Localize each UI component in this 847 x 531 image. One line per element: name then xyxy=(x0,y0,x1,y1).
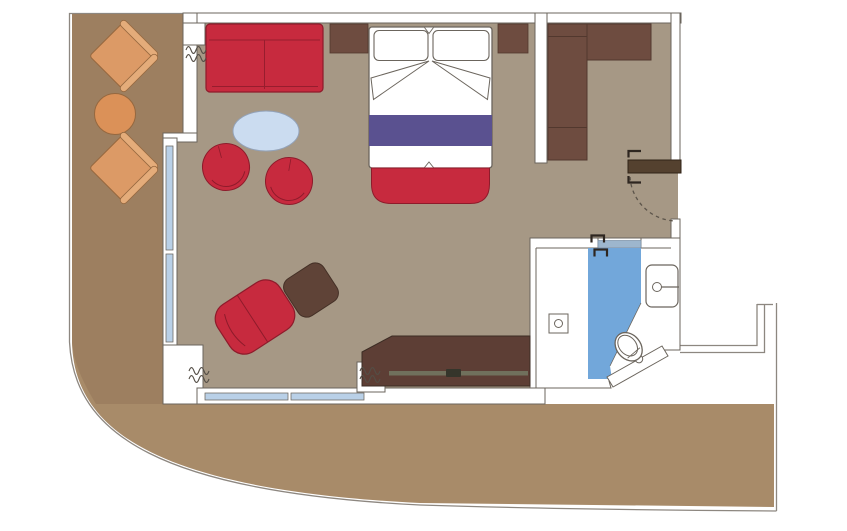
shower-drain xyxy=(549,314,568,333)
nightstand-left xyxy=(330,24,368,53)
entry-door xyxy=(628,160,681,173)
coffee-table xyxy=(233,111,299,151)
bathroom xyxy=(530,236,680,389)
desk-accessory xyxy=(446,369,461,377)
wall-corner-column xyxy=(183,23,205,45)
floor-plan-drawing xyxy=(0,0,847,531)
desk-console xyxy=(362,336,530,386)
wardrobe-horizontal xyxy=(587,24,651,60)
window-left-lower xyxy=(166,254,173,342)
wall-top xyxy=(183,13,681,23)
wall-vestibule xyxy=(535,13,547,163)
wall-right-upper xyxy=(671,13,680,166)
pillow-right xyxy=(433,31,489,61)
sofa xyxy=(206,24,323,92)
balcony-table xyxy=(95,94,136,135)
corridor-wall-line-1 xyxy=(680,304,757,346)
window-bottom-left xyxy=(205,393,288,400)
pillow-left xyxy=(374,31,428,61)
floor-plan-canvas xyxy=(0,0,847,531)
wardrobe-vertical xyxy=(548,24,587,160)
window-bottom-right xyxy=(291,393,364,400)
washbasin xyxy=(646,265,679,307)
bed-foot-bench xyxy=(372,168,490,204)
nightstand-right xyxy=(498,24,528,53)
bed-runner xyxy=(369,115,492,146)
window-left-upper xyxy=(166,146,173,250)
